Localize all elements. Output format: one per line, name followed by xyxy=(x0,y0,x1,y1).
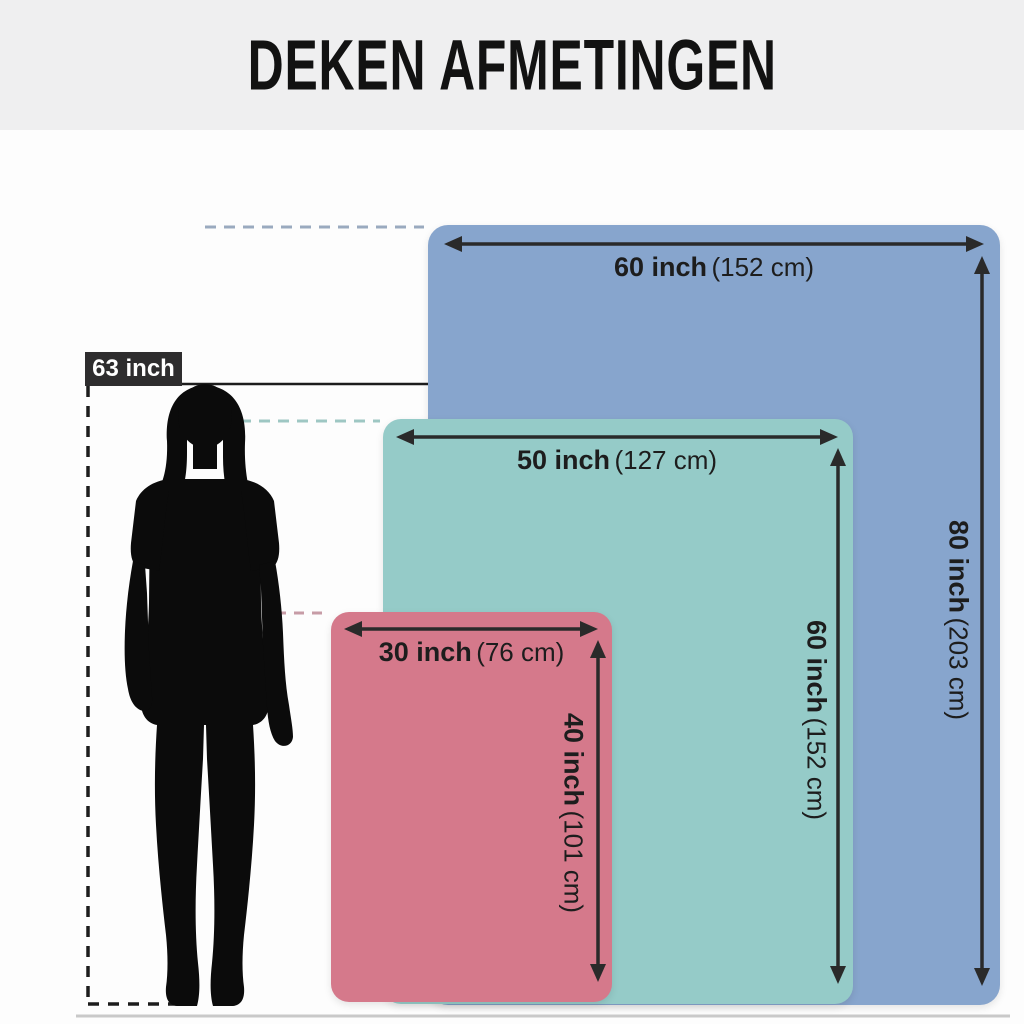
person-height-badge: 63 inch xyxy=(85,352,182,386)
header-band: DEKEN AFMETINGEN xyxy=(0,0,1024,130)
woman-figure xyxy=(125,384,293,1006)
person-silhouette xyxy=(123,383,307,1015)
blanket-large-width-label: 60 inch (152 cm) xyxy=(444,252,984,283)
blanket-medium-height-label: 60 inch (152 cm) xyxy=(794,470,838,970)
blanket-size-infographic: DEKEN AFMETINGEN xyxy=(0,0,1024,1024)
page-title: DEKEN AFMETINGEN xyxy=(247,24,776,107)
blanket-large-height-label: 80 inch (203 cm) xyxy=(936,300,980,940)
blanket-medium-width-label: 50 inch (127 cm) xyxy=(396,445,838,476)
person-height-label: 63 inch xyxy=(92,355,175,383)
blanket-small-height-label: 40 inch (101 cm) xyxy=(551,660,595,966)
